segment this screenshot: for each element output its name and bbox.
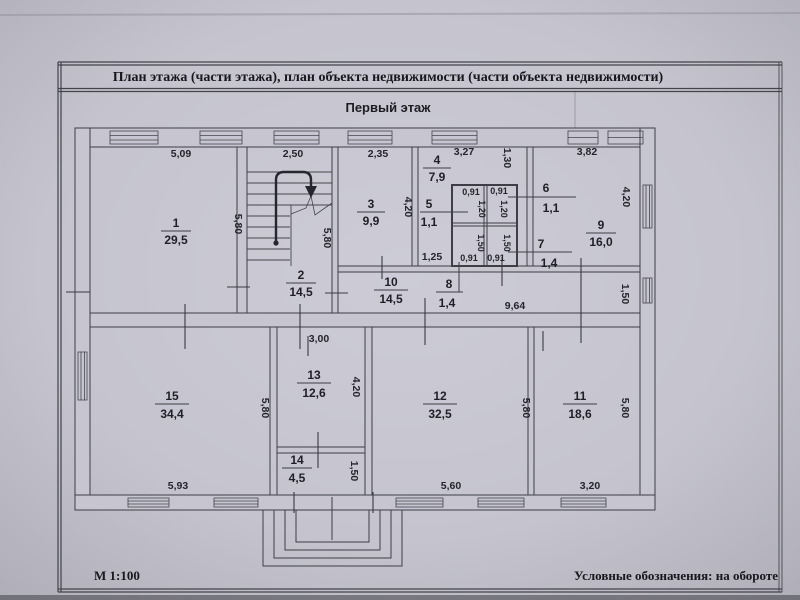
- dim-room9-height: 4,20: [620, 187, 632, 208]
- dim-room12-height: 5,80: [520, 398, 532, 419]
- svg-text:7,9: 7,9: [429, 170, 446, 184]
- dim-room4-strip: 1,25: [422, 251, 443, 263]
- dim-top-room3: 2,35: [368, 148, 389, 160]
- dim-cell8-width: 0,91: [460, 253, 478, 263]
- svg-text:4,5: 4,5: [289, 471, 306, 485]
- svg-text:1,1: 1,1: [543, 201, 560, 215]
- dim-corridor-length: 9,64: [505, 300, 526, 312]
- svg-text:1: 1: [173, 216, 180, 230]
- svg-text:3: 3: [368, 197, 375, 211]
- dim-cell7-width: 0,91: [487, 253, 505, 263]
- dim-cell6-width: 0,91: [490, 186, 508, 196]
- floor-plan-drawing: План этажа (части этажа), план объекта н…: [0, 0, 800, 600]
- dim-room13-width: 3,00: [309, 333, 330, 345]
- svg-text:4: 4: [434, 153, 441, 167]
- svg-text:29,5: 29,5: [164, 233, 188, 247]
- svg-text:15: 15: [165, 389, 179, 403]
- dim-cell6-height: 1,20: [499, 200, 509, 218]
- dim-room14-height: 1,50: [348, 461, 360, 482]
- dim-room13-height: 4,20: [350, 377, 362, 398]
- dim-room15-height: 5,80: [259, 398, 271, 419]
- dim-bottom-room15: 5,93: [168, 480, 189, 492]
- svg-text:34,4: 34,4: [160, 407, 184, 421]
- svg-text:1,4: 1,4: [541, 256, 558, 270]
- dim-room11-height: 5,80: [619, 398, 631, 419]
- dim-cell8-height: 1,50: [476, 234, 486, 252]
- dim-cell5-width: 0,91: [462, 187, 480, 197]
- dim-stairs-height: 5,80: [321, 228, 333, 249]
- floor-subtitle: Первый этаж: [345, 100, 431, 115]
- dim-top-room9: 3,82: [577, 146, 598, 158]
- svg-text:8: 8: [446, 277, 453, 291]
- page-title: План этажа (части этажа), план объекта н…: [113, 70, 664, 85]
- svg-text:2: 2: [298, 268, 305, 282]
- svg-text:1,1: 1,1: [421, 215, 438, 229]
- dim-room3-height: 4,20: [402, 197, 414, 218]
- svg-text:13: 13: [307, 368, 321, 382]
- svg-text:14,5: 14,5: [289, 285, 313, 299]
- svg-text:10: 10: [384, 275, 398, 289]
- svg-text:6: 6: [543, 181, 550, 195]
- svg-text:7: 7: [538, 237, 545, 251]
- dim-top-room1: 5,09: [171, 148, 192, 160]
- svg-text:14: 14: [290, 453, 304, 467]
- svg-text:9,9: 9,9: [363, 214, 380, 228]
- dim-cell7-height: 1,50: [502, 234, 512, 252]
- svg-text:9: 9: [598, 218, 605, 232]
- scale-label: М 1:100: [94, 568, 140, 583]
- dim-cell5-height: 1,20: [477, 200, 487, 218]
- svg-text:14,5: 14,5: [379, 292, 403, 306]
- svg-text:5: 5: [426, 197, 433, 211]
- dim-corridor-width: 1,50: [619, 284, 631, 305]
- svg-text:12,6: 12,6: [302, 386, 326, 400]
- svg-text:32,5: 32,5: [428, 407, 452, 421]
- dim-top-stairs: 2,50: [283, 148, 304, 160]
- svg-text:18,6: 18,6: [568, 407, 592, 421]
- svg-text:16,0: 16,0: [589, 235, 613, 249]
- svg-text:11: 11: [574, 389, 587, 403]
- svg-text:12: 12: [433, 389, 447, 403]
- dim-bottom-room11: 3,20: [580, 480, 601, 492]
- dim-room1-height: 5,80: [232, 214, 244, 235]
- legend-label: Условные обозначения: на обороте: [574, 568, 778, 583]
- svg-text:1,4: 1,4: [439, 296, 456, 310]
- dim-top-room4: 3,27: [454, 146, 475, 158]
- floor-plan-document: План этажа (части этажа), план объекта н…: [0, 0, 800, 600]
- photo-bottom-edge: [0, 595, 800, 600]
- dim-bottom-room12: 5,60: [441, 480, 462, 492]
- dim-room4-right: 1,30: [501, 148, 513, 169]
